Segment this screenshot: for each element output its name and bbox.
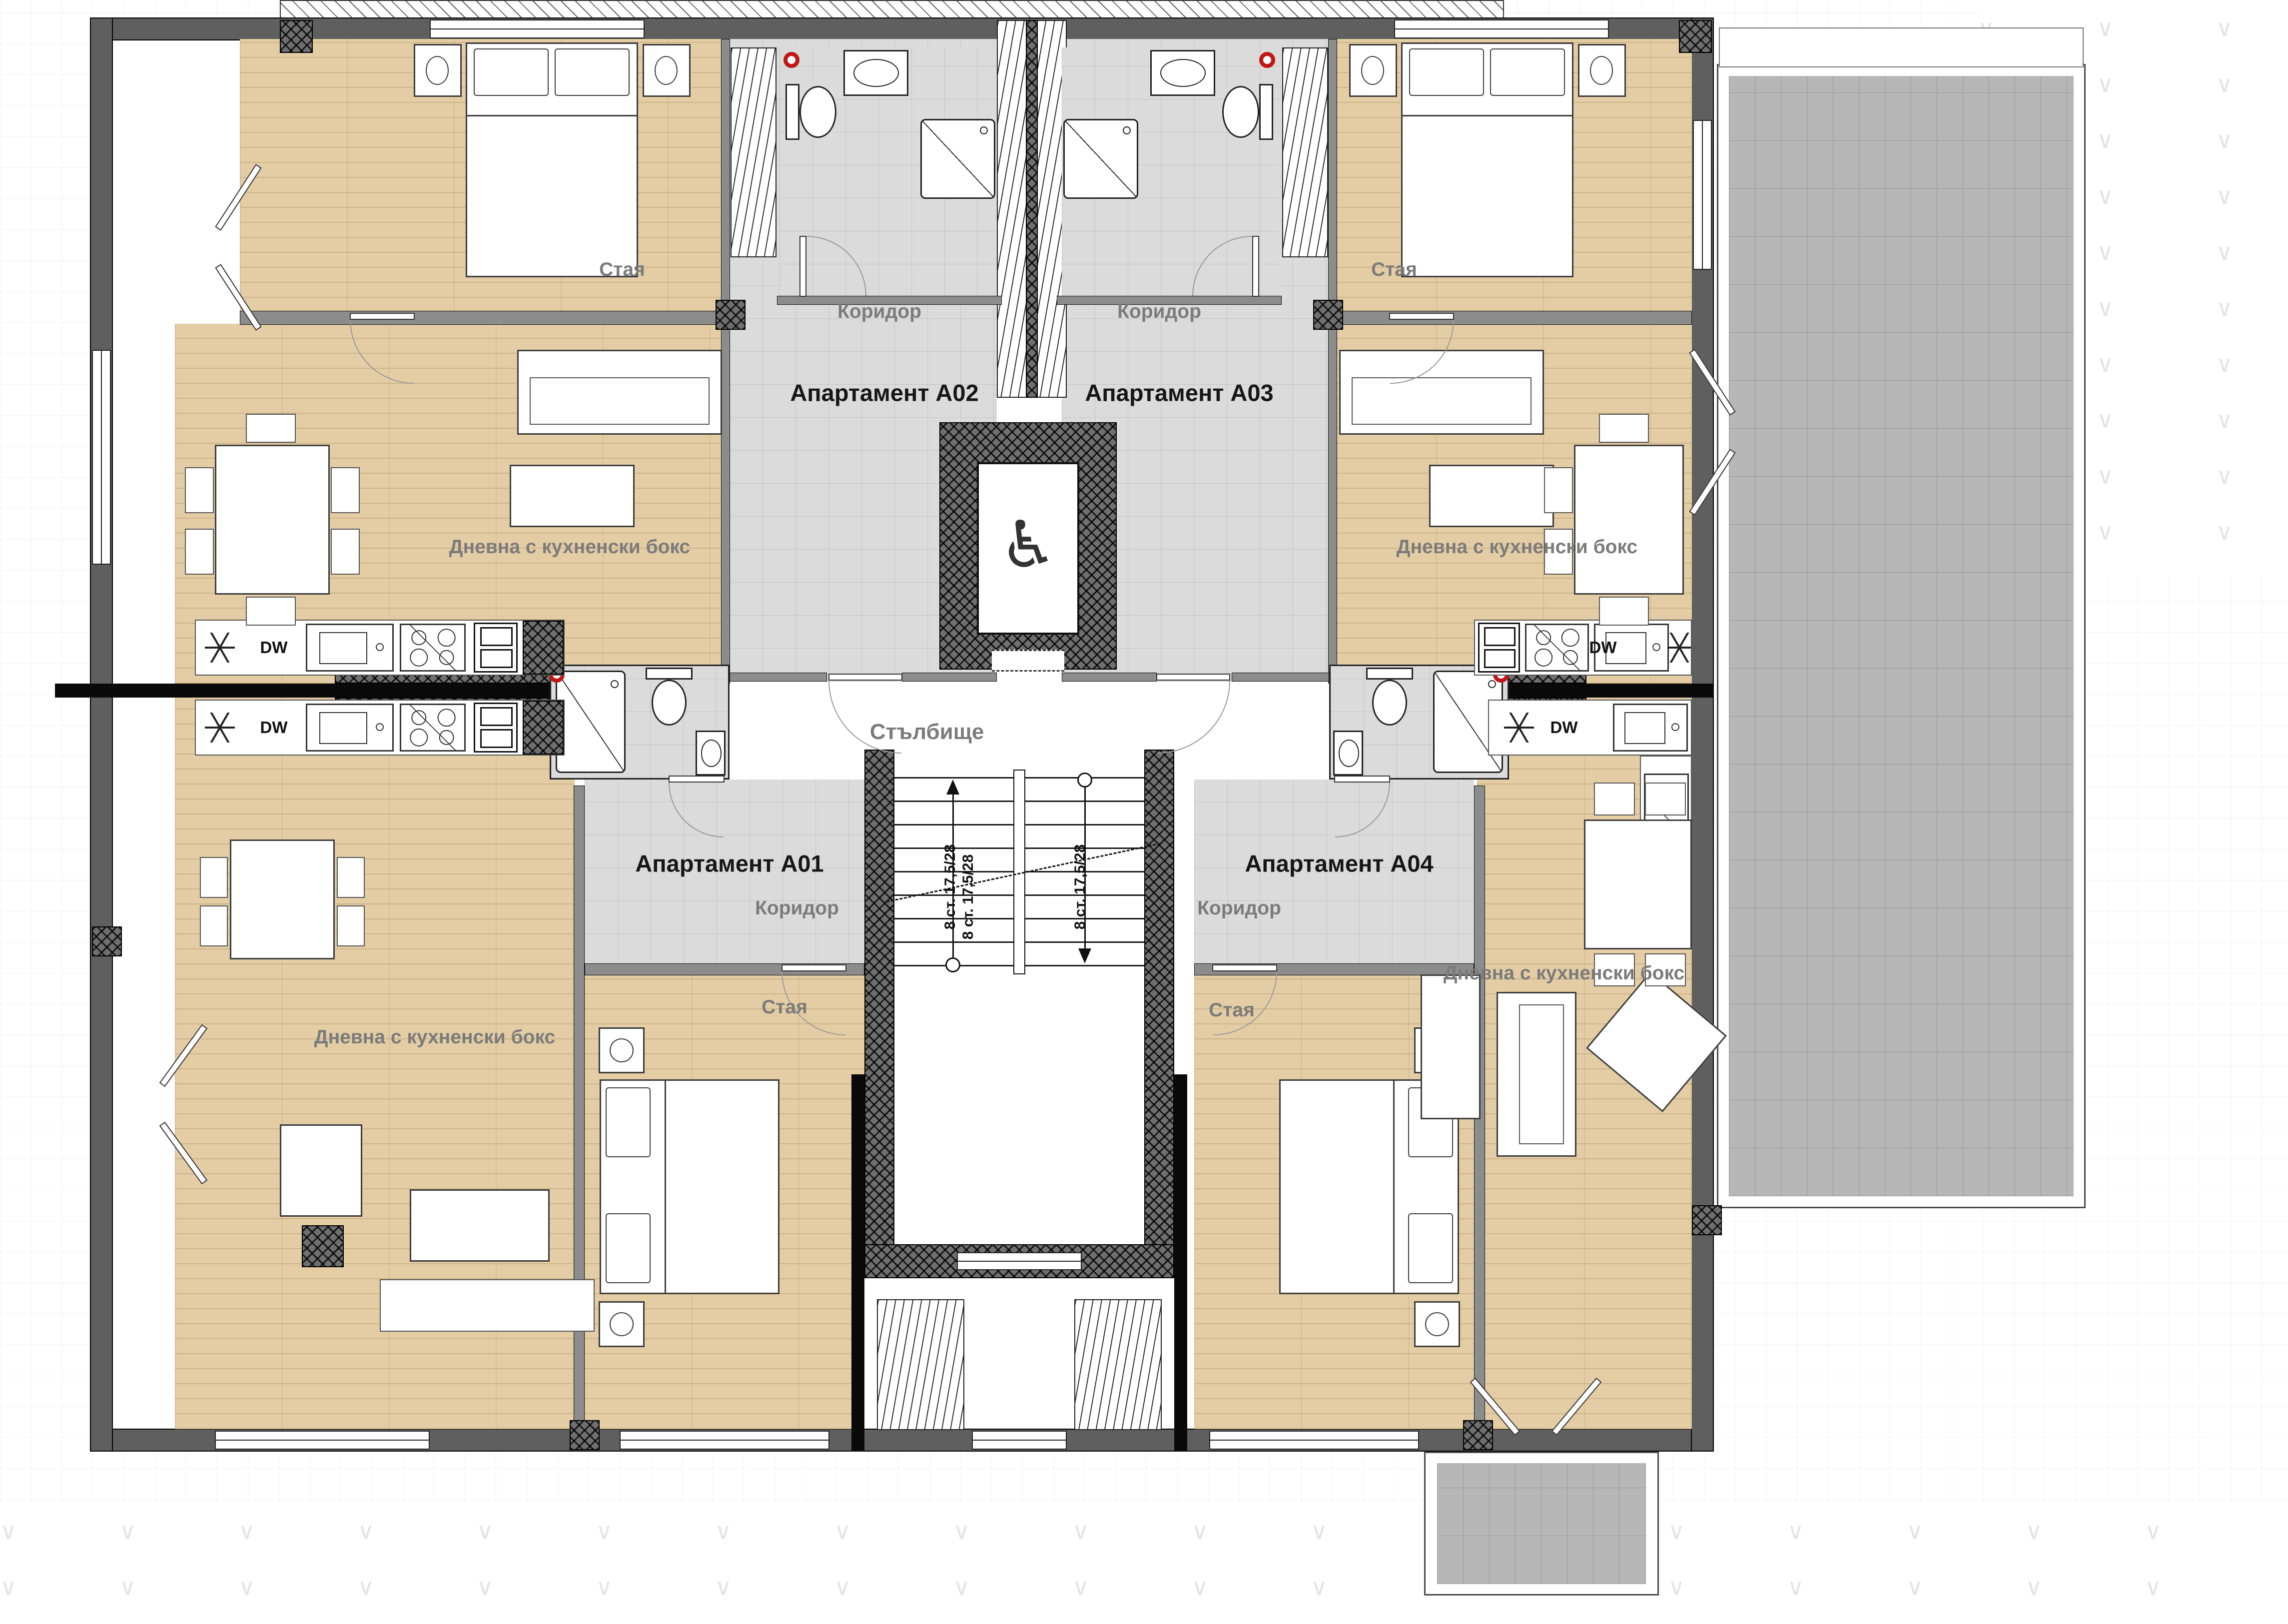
tv-board-a01 [380,1279,595,1332]
toilet-a02 [799,86,836,138]
lamp-a02-left [426,56,449,85]
stairwell-wall-left [864,750,894,1278]
window-stairwell [972,1431,1067,1450]
door-entry-a03 [1156,674,1230,681]
floor-plan-canvas: ∨ ∨ ∨ ∨ ∨ ∨ ∨ ∨ ∨ ∨ ∨ ∨ ∨ ∨ ∨ ∨ ∨ ∨ ∨ ∨ … [0,0,2288,1624]
column-bl-corner [92,926,122,956]
roof-texture-bottom: ∨ ∨ ∨ ∨ ∨ ∨ ∨ ∨ ∨ ∨ ∨ ∨ ∨ ∨ ∨ ∨ ∨ ∨ ∨ ∨ … [0,1503,2288,1624]
roof-overhang-strip [280,0,1504,19]
toilet-tank-a02 [785,84,799,140]
wardrobe-a03 [1282,47,1328,257]
label-staircase: Стълбище [870,720,984,745]
pillow-a03-2 [1490,48,1565,96]
wall-cora02-lobby-r [902,673,997,682]
shower-a03 [1063,119,1138,199]
coffee-table-a04 [1421,974,1481,1119]
label-corridor-a04: Коридор [1197,897,1281,919]
sink-a01 [696,731,726,776]
sofa-a01 [280,1124,362,1217]
sofa-a02-seat [530,377,710,425]
column-bot-2 [1463,1420,1493,1450]
dining-table-a01 [230,839,335,959]
toilet-tank-a01 [646,668,693,680]
wall-beda02-liv [240,311,727,325]
door-bedroom-a04 [1212,964,1277,971]
lamp-a04-bottom [1425,1312,1449,1336]
vent-shaft-divider [1026,20,1038,398]
toilet-a03 [1222,86,1259,138]
stove-a01 [400,704,466,752]
pillow-a02-2 [555,48,630,96]
wardrobe-a04 [1074,1299,1162,1430]
wardrobe-a01 [877,1299,964,1430]
coffee-table-a02 [510,465,635,527]
lamp-a01-top [610,1038,634,1062]
chair-a03-4 [1599,597,1649,626]
label-corridor-a03: Коридор [1117,301,1201,323]
lamp-a02-right [655,56,678,85]
stairwell-wall-right [1144,750,1174,1278]
wall-beda03-liv [1329,311,1692,325]
bed-a02-sheet-line [467,115,637,116]
coffee-table-a01 [410,1189,550,1262]
sofa-a04-seat [1519,1004,1564,1144]
chair-a01-2 [200,905,228,946]
fridge-a03 [1478,623,1520,673]
kitchen-symbol-a01 [205,713,235,743]
fridge-a01 [474,703,518,753]
coffee-table-a03 [1429,465,1554,527]
door-bedroom-a02 [350,313,415,320]
label-dw-a01: DW [260,718,288,737]
label-apartment-a01: Апартамент А01 [635,850,823,877]
shower-a02 [920,119,995,199]
chair-a03-3 [1599,414,1649,443]
shower-a01 [556,671,626,773]
wall-beda02-cor [721,39,730,313]
chair-a04-1 [1594,783,1635,815]
label-stair-flight-2: 8 ст. 17,5/28 [960,854,977,940]
sofa-a03-seat [1352,377,1531,425]
stairwell-landing-window [957,1252,1082,1270]
dining-table-a03 [1574,445,1684,595]
pillow-a01-1 [606,1087,651,1157]
window-bedroom-a02 [430,19,645,38]
kitchen-end-column-a02 [523,621,564,675]
label-room-a02: Стая [599,259,645,281]
party-wall-stair-left [851,1074,864,1452]
kitchen-symbol-a02 [205,633,235,663]
column-bot-1 [570,1420,600,1450]
stair-section-circle-1 [945,957,960,972]
window-bedroom-a04 [1209,1431,1419,1450]
wardrobe-a02 [731,47,776,257]
party-wall-a01a02 [55,684,585,698]
chair-a02-2 [185,529,214,575]
wall-cora03-lobby-l [1062,673,1157,682]
wall-beda03-cor [1328,39,1337,313]
window-bedroom-a01 [620,1431,829,1450]
dining-table-a02 [215,445,330,595]
door-bath-a02 [799,236,806,297]
label-living-a02: Дневна с кухненски бокс [449,536,690,558]
chair-a02-3 [331,467,360,513]
label-stair-flight-1: 8 ст. 17,5/28 [942,844,959,930]
column-cor-a03 [1313,300,1343,330]
kitchen-symbol-a03 [1668,633,1691,663]
party-wall-stair-right [1174,1074,1187,1452]
kitchen-sink-a01 [306,704,394,752]
wall-liva03-cor [1328,324,1337,684]
chair-a04-2 [1645,783,1686,815]
elevator-door-gap [992,650,1064,672]
column-roof-left [280,20,313,53]
window-living-a01 [215,1431,430,1450]
column-roof-right [1679,20,1712,53]
sink-a04 [1333,731,1363,776]
chair-a02-4 [331,529,360,575]
window-bedroom-a03 [1394,19,1609,38]
chair-a01-3 [337,857,365,898]
lamp-a03-left [1361,56,1384,85]
dining-table-a04 [1584,819,1692,949]
kitchen-sink-a02 [306,624,394,672]
pillow-a01-2 [606,1213,651,1283]
bed-a01-sheet-line [665,1081,666,1293]
label-dw-a03: DW [1589,638,1617,657]
label-apartment-a02: Апартамент А02 [790,379,978,407]
kitchen-end-column-a01 [523,701,564,755]
chair-a01-1 [200,857,228,898]
wall-cora03-lobby-r [1232,673,1329,682]
wall-cora02-lobby-l [730,673,827,682]
kitchen-symbol-a04 [1504,713,1534,743]
lamp-a01-bottom [610,1312,634,1336]
pillow-a03-1 [1409,48,1484,96]
wall-beda01-liv [574,786,585,1429]
vent-marker-a03 [1259,52,1275,68]
chair-a01-4 [337,905,365,946]
column-terrace-edge [1692,1205,1722,1235]
window-living-a02 [92,350,111,565]
stair-down-arrowhead [1078,948,1091,963]
pillow-a04-2 [1408,1213,1453,1283]
label-apartment-a04: Апартамент А04 [1245,850,1433,877]
wall-liva02-cor [721,324,730,684]
chair-a02-6 [246,597,296,626]
toilet-tank-a03 [1259,84,1273,140]
door-bath-a04 [1334,776,1390,783]
sink-a03 [1150,50,1215,96]
kitchen-sink-a04 [1613,704,1688,752]
label-room-a03: Стая [1371,259,1417,281]
label-stair-flight-3: 8 ст. 17,5/28 [1072,844,1089,930]
fridge-a02 [474,623,518,673]
stove-a02 [400,624,466,672]
wheelchair-icon: ♿ [999,507,1058,583]
pillow-a02-1 [474,48,549,96]
label-corridor-a02: Коридор [837,301,921,323]
label-living-a01: Дневна с кухненски бокс [314,1026,555,1048]
door-bath-a03 [1252,236,1259,297]
toilet-a04 [1372,680,1407,726]
toilet-tank-a04 [1366,668,1413,680]
door-entry-a02 [828,674,902,681]
label-room-a01: Стая [762,996,807,1018]
stair-up-arrowhead [946,780,959,795]
door-bedroom-a03 [1389,313,1454,320]
label-corridor-a01: Коридор [755,897,839,919]
label-dw-a04: DW [1550,718,1578,737]
column-cor-a02 [716,300,746,330]
label-living-a03: Дневна с кухненски бокс [1397,536,1637,558]
terrace-right [1729,76,2074,1196]
chair-a03-1 [1544,467,1573,513]
vent-marker-a02 [783,52,799,68]
bed-a03-sheet-line [1403,115,1572,116]
chair-a02-5 [246,414,296,443]
door-bath-a01 [669,776,725,783]
vent-shaft-left-channel [997,20,1028,398]
column-a01-living [302,1225,344,1267]
sink-a02 [843,50,908,96]
stove-a03 [1525,624,1589,672]
label-living-a04: Дневна с кухненски бокс [1444,962,1684,984]
lamp-a03-right [1590,56,1613,85]
label-room-a04: Стая [1209,999,1255,1021]
chair-a02-1 [185,467,214,513]
door-bedroom-a01 [781,964,846,971]
terrace-top-band [1719,27,2084,67]
balcony-a04 [1437,1463,1646,1584]
stair-section-circle-2 [1077,773,1092,788]
label-apartment-a03: Апартамент А03 [1085,379,1273,407]
toilet-a01 [652,680,687,726]
bed-a04-sheet-line [1393,1081,1395,1293]
exterior-wall-left [90,17,113,1452]
window-terrace-a03 [1693,120,1712,270]
label-dw-a02: DW [260,638,288,657]
